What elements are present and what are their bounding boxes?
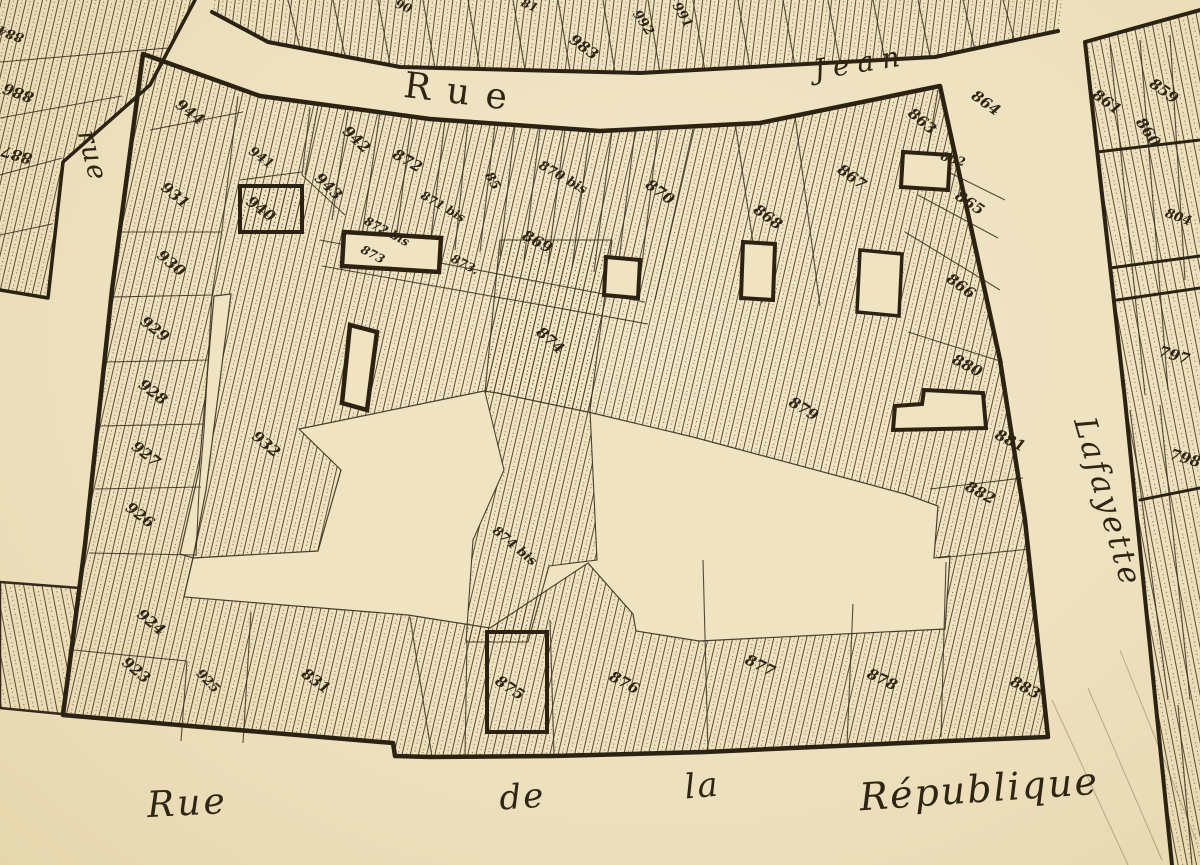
street-label-republique-rue: Rue [145, 781, 229, 826]
building-866 [857, 250, 902, 316]
street-label-republique-la: la [683, 765, 722, 808]
building-central-b [741, 242, 775, 300]
building-central-a [604, 257, 640, 298]
map-canvas: RueJeanrueLafayetteRuedelaRépublique9449… [0, 0, 1200, 865]
street-label-rue-left: rue [71, 127, 114, 185]
parcel-label-864: 864 [968, 86, 1004, 119]
cadastral-map-scan: RueJeanrueLafayetteRuedelaRépublique9449… [0, 0, 1200, 865]
street-label-republique-word: République [857, 759, 1100, 820]
street-label-rue-jean-word-rue: Rue [402, 65, 526, 120]
street-label-republique-de: de [498, 775, 547, 818]
